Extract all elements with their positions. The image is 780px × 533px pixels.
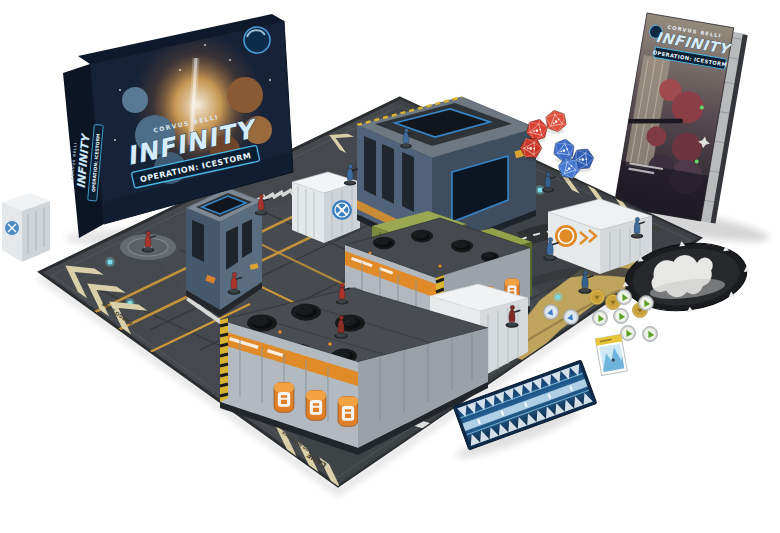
- gold-token: [589, 289, 604, 304]
- camo-token: [620, 325, 635, 340]
- camo-token: [613, 308, 628, 323]
- camo-token: [642, 326, 657, 341]
- hazard-stripe-column: [220, 318, 228, 402]
- camo-token: [616, 289, 631, 304]
- blue-token: [543, 304, 558, 319]
- rulebook: CORVUS BELLI INFINITY OPERATION: ICESTOR…: [610, 12, 748, 223]
- blue-token: [563, 309, 578, 324]
- white-container-far-left: [2, 193, 50, 262]
- camo-token: [638, 295, 653, 310]
- ice-card: [595, 334, 627, 375]
- scene-svg: CORVUS BELLI INFINITY OPERATION: ICESTOR…: [0, 0, 780, 533]
- product-photo-infinity-icestorm: CORVUS BELLI INFINITY OPERATION: ICESTOR…: [0, 0, 780, 533]
- camo-token: [592, 310, 607, 325]
